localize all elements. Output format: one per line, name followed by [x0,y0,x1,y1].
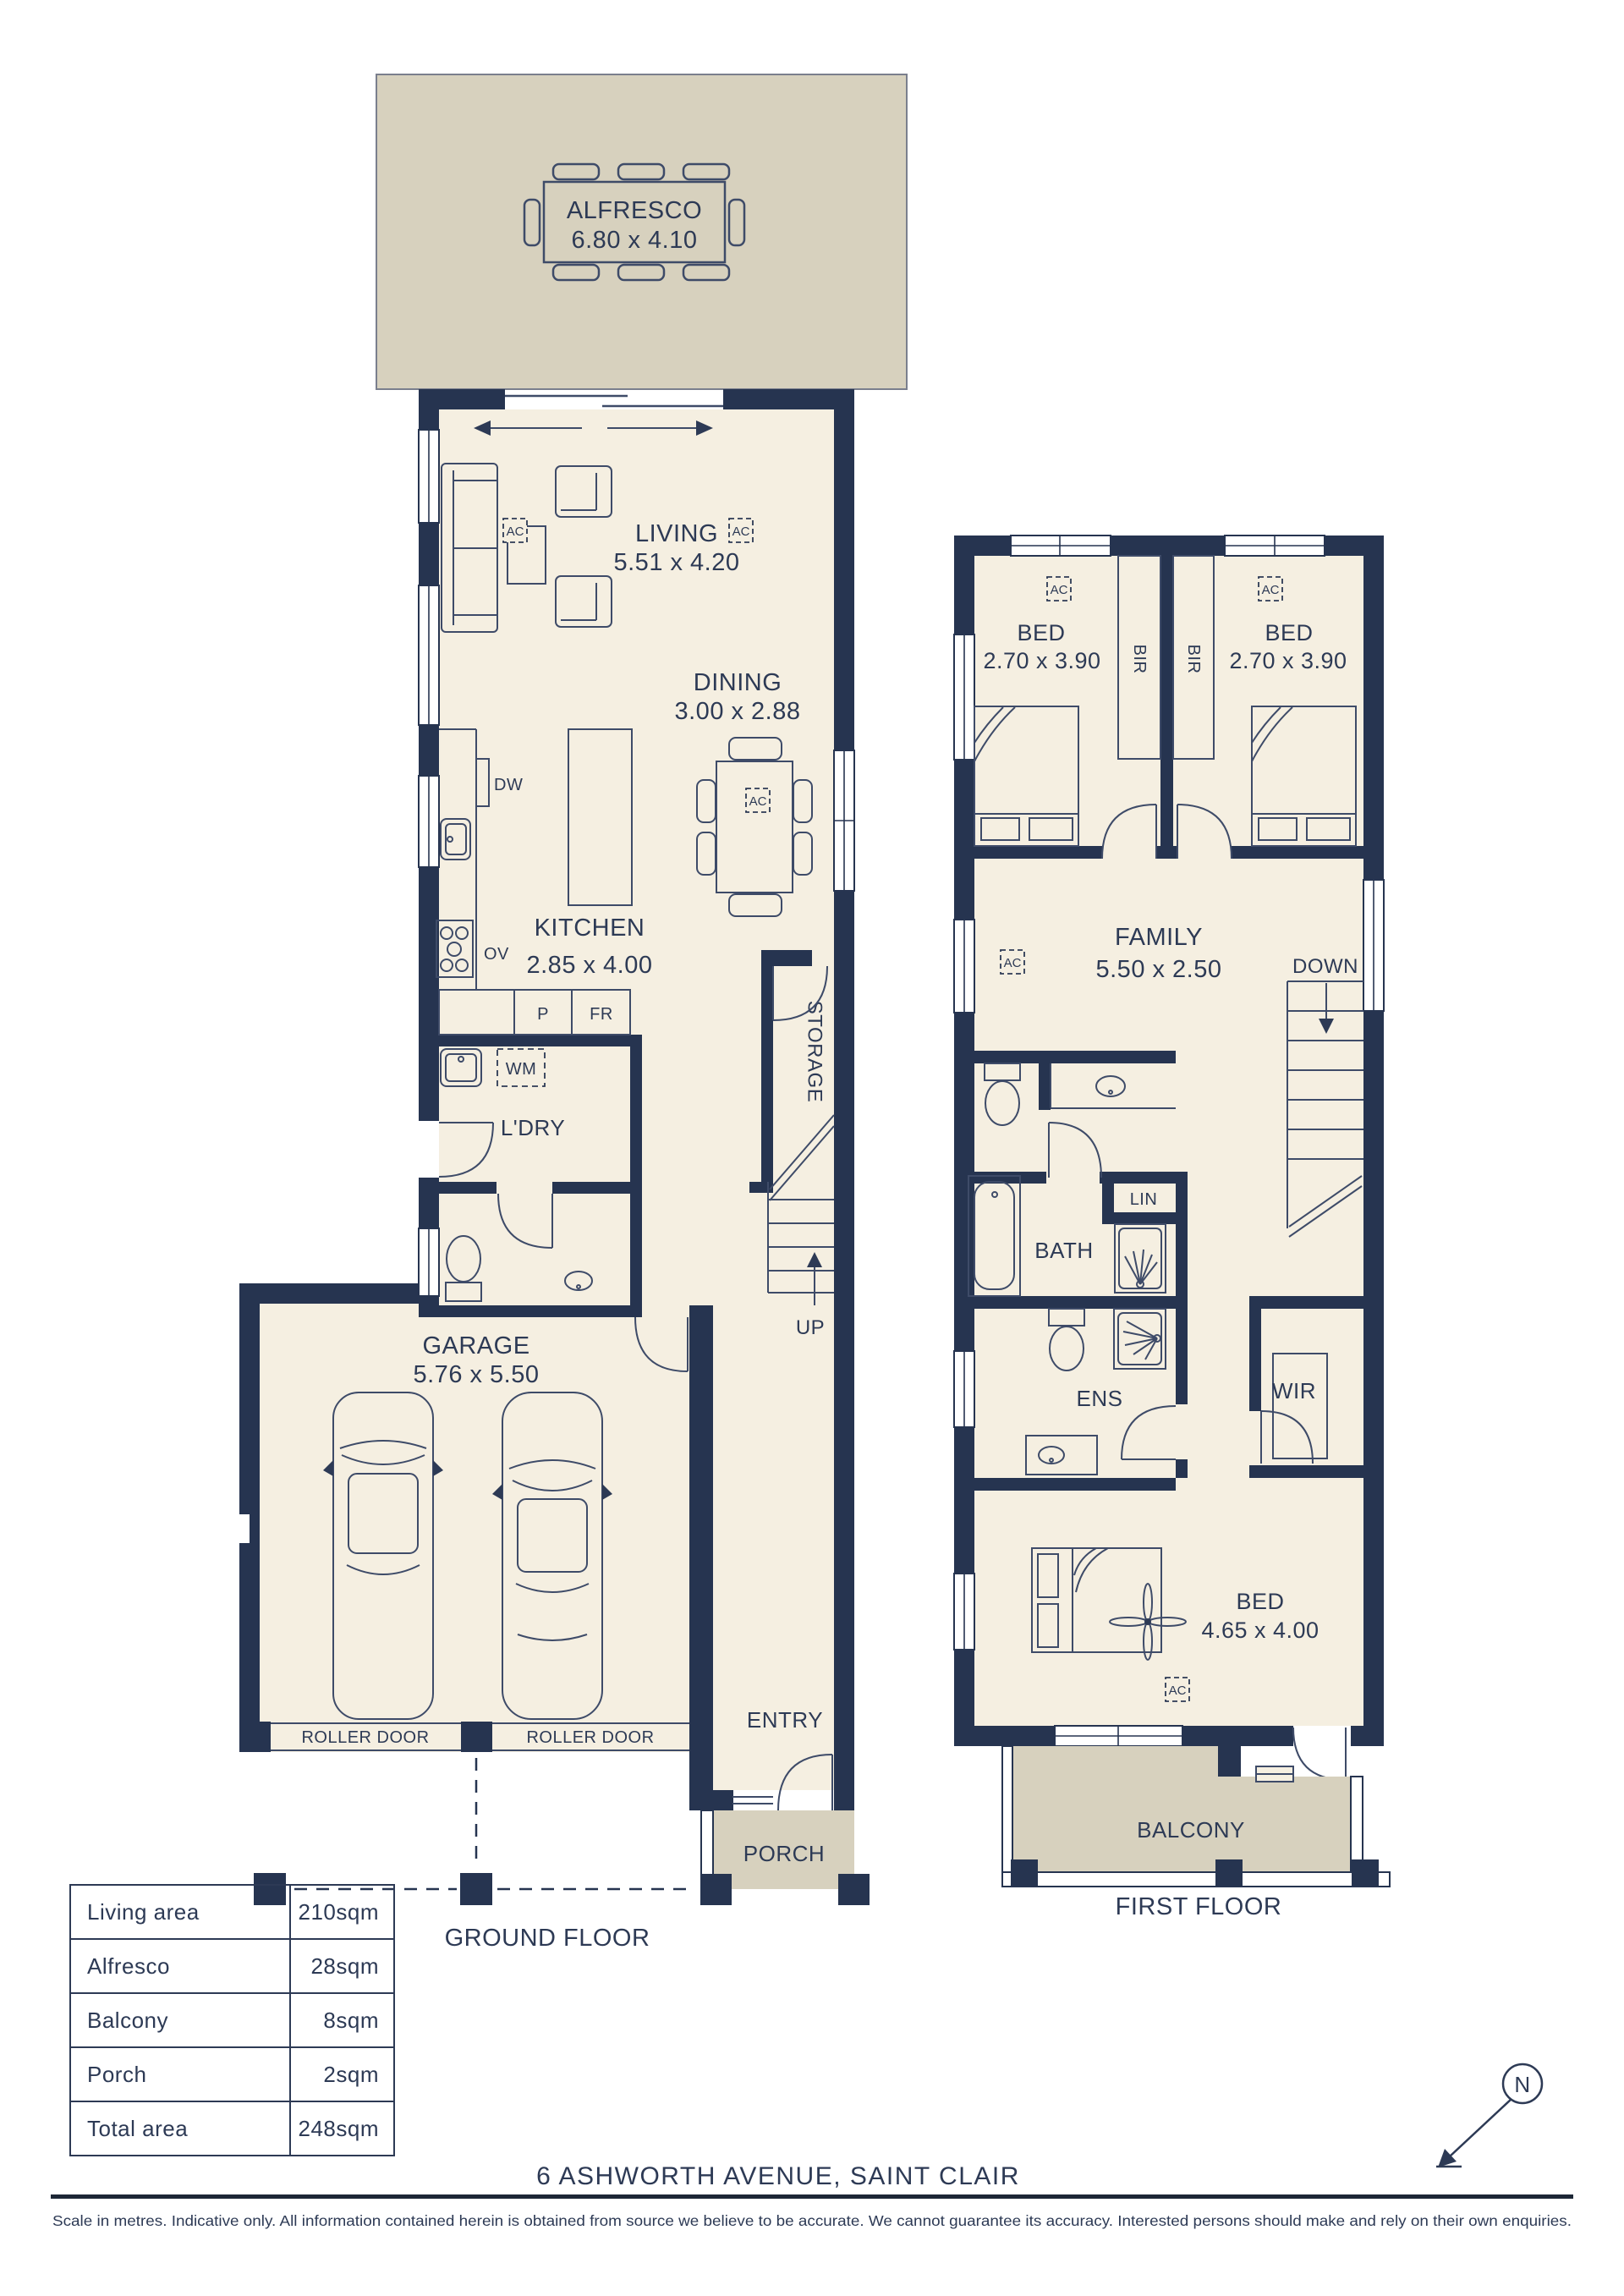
floorplan-page: ALFRESCO 6.80 x 4.10 [0,0,1624,2296]
page-title: 6 ASHWORTH AVENUE, SAINT CLAIR [536,2162,1020,2190]
bed2-label: BED [1265,620,1313,645]
ac-unit: AC [1166,1678,1189,1701]
svg-text:AC: AC [1169,1684,1187,1698]
living-label: LIVING [635,520,718,547]
entry-label: ENTRY [747,1707,823,1733]
stairs-down-label: DOWN [1292,955,1358,978]
balcony-steps [1256,1766,1293,1782]
first-floor-plan: BIR BIR AC BED 2.70 x 3.90 [954,536,1390,1920]
north-label: N [1514,2072,1530,2097]
family-dims: 5.50 x 2.50 [1096,956,1222,983]
balcony-label: BALCONY [1137,1817,1245,1843]
row-label: Porch [87,2062,146,2087]
oven-label: OV [484,945,509,964]
table-row: Balcony 8sqm [87,2008,379,2033]
living-dims: 5.51 x 4.20 [614,549,740,576]
table-row: Alfresco 28sqm [87,1953,379,1979]
garage-dims: 5.76 x 5.50 [414,1361,540,1388]
porch-label: PORCH [743,1841,825,1866]
table-row: Living area 210sqm [87,1899,379,1925]
bed1-label: BED [1017,620,1065,645]
svg-text:AC: AC [1004,956,1022,970]
linen-label: LIN [1130,1190,1158,1209]
row-label: Total area [87,2116,188,2141]
svg-text:AC: AC [732,525,750,539]
svg-text:AC: AC [507,525,524,539]
ac-unit: AC [1047,577,1071,601]
alfresco-label: ALFRESCO [567,197,702,224]
ensuite-label: ENS [1077,1386,1123,1411]
row-label: Balcony [87,2008,168,2033]
svg-text:ROLLER DOOR: ROLLER DOOR [526,1728,654,1747]
ac-unit: AC [1259,577,1282,601]
svg-text:ROLLER DOOR: ROLLER DOOR [301,1728,429,1747]
stairs-up-label: UP [796,1316,825,1339]
porch-area: PORCH [700,1810,870,1905]
pantry-label: P [537,1005,549,1024]
svg-text:WM: WM [506,1060,537,1079]
garage-label: GARAGE [422,1332,529,1359]
row-label: Alfresco [87,1953,170,1979]
svg-text:BIR: BIR [1184,645,1203,674]
kitchen-label: KITCHEN [535,915,645,942]
ac-unit: AC [729,519,753,542]
balcony-area: BALCONY [1002,1746,1390,1887]
svg-text:BIR: BIR [1130,645,1149,674]
row-value: 210sqm [299,1899,380,1925]
svg-text:AC: AC [1262,583,1280,597]
area-table: Living area 210sqm Alfresco 28sqm Balcon… [70,1885,394,2156]
disclaimer: Scale in metres. Indicative only. All in… [52,2212,1572,2229]
table-row: Total area 248sqm [87,2116,379,2141]
ac-unit: AC [746,788,770,812]
row-value: 8sqm [323,2008,379,2033]
master-bed-label: BED [1236,1589,1284,1614]
master-bed-dims: 4.65 x 4.00 [1201,1618,1319,1643]
north-arrow-icon: N [1436,2064,1542,2167]
floor-plan-svg: ALFRESCO 6.80 x 4.10 [0,0,1624,2296]
row-value: 28sqm [310,1953,379,1979]
ground-floor-plan: ALFRESCO 6.80 x 4.10 [239,74,907,1952]
driveway-boundary [254,1758,695,1905]
svg-text:AC: AC [749,794,767,809]
wir-label: WIR [1272,1378,1316,1403]
dining-dims: 3.00 x 2.88 [675,698,801,725]
laundry-label: L'DRY [501,1115,565,1140]
bath-label: BATH [1034,1238,1093,1263]
ground-floor-slab [260,409,834,1790]
alfresco-area: ALFRESCO 6.80 x 4.10 [376,74,907,389]
storage-label: STORAGE [804,1001,826,1102]
table-row: Porch 2sqm [87,2062,379,2087]
svg-text:AC: AC [1051,583,1068,597]
fridge-label: FR [590,1005,613,1024]
first-floor-caption: FIRST FLOOR [1116,1893,1282,1920]
alfresco-dims: 6.80 x 4.10 [572,227,698,254]
row-value: 2sqm [323,2062,379,2087]
kitchen-dims: 2.85 x 4.00 [527,952,653,979]
bed2-dims: 2.70 x 3.90 [1229,648,1347,673]
ground-floor-caption: GROUND FLOOR [445,1925,650,1952]
footer-divider [51,2194,1573,2199]
bed1-dims: 2.70 x 3.90 [983,648,1100,673]
dishwasher-label: DW [494,776,523,794]
row-value: 248sqm [299,2116,380,2141]
row-label: Living area [87,1899,200,1925]
family-label: FAMILY [1115,924,1203,951]
dining-label: DINING [694,669,782,696]
ac-unit: AC [1001,950,1024,974]
ac-unit: AC [503,519,527,542]
